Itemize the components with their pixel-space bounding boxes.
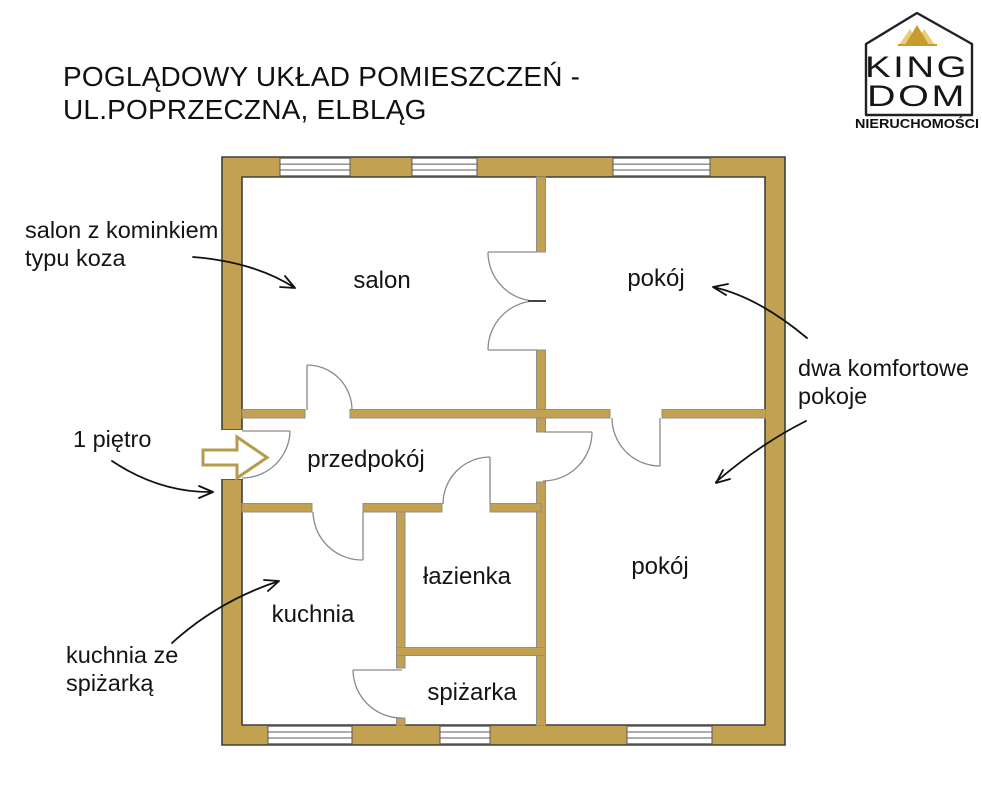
floor-plan-page: POGLĄDOWY UKŁAD POMIESZCZEŃ - UL.POPRZEC… <box>0 0 982 800</box>
room-label-pokoj-bottom: pokój <box>631 553 688 580</box>
window-icon <box>280 158 350 176</box>
windows-bottom-wall <box>268 726 712 744</box>
arrow-to-pokoj-bottom <box>716 421 806 483</box>
window-icon <box>412 158 477 176</box>
logo-subtitle: NIERUCHOMOŚCI <box>855 116 979 131</box>
note-rooms: dwa komfortowe pokoje <box>798 355 976 409</box>
room-label-przedpokoj: przedpokój <box>307 446 424 473</box>
window-icon <box>440 726 490 744</box>
room-label-spizarka: spiżarka <box>427 679 517 706</box>
arrow-to-pokoj-top <box>713 284 807 338</box>
window-icon <box>627 726 712 744</box>
salon-door-icon <box>307 365 352 410</box>
room-to-room-door-icon <box>612 418 660 466</box>
arrow-to-entrance <box>112 461 213 498</box>
room-label-salon: salon <box>353 267 410 294</box>
room-label-kuchnia: kuchnia <box>272 601 355 628</box>
window-icon <box>613 158 710 176</box>
kitchen-door-icon <box>313 512 363 560</box>
note-salon: salon z kominkiem typu koza <box>25 217 225 271</box>
page-title: POGLĄDOWY UKŁAD POMIESZCZEŃ - UL.POPRZEC… <box>63 60 580 126</box>
bathroom-door-icon <box>443 457 490 504</box>
hall-to-room-door-icon <box>543 432 592 481</box>
page-title-line1: POGLĄDOWY UKŁAD POMIESZCZEŃ - <box>63 60 580 93</box>
double-door-bottom-icon <box>488 301 537 350</box>
page-title-line2: UL.POPRZECZNA, ELBLĄG <box>63 93 580 126</box>
note-floor: 1 piętro <box>73 426 151 452</box>
double-door-top-icon <box>488 252 537 301</box>
agency-logo: KING DOM NIERUCHOMOŚCI <box>855 13 979 131</box>
room-label-pokoj-top: pokój <box>627 265 684 292</box>
logo-word-dom: DOM <box>867 80 967 113</box>
window-icon <box>268 726 352 744</box>
pantry-door-icon <box>353 670 402 718</box>
arrow-to-salon <box>193 257 295 288</box>
room-label-lazienka: łazienka <box>423 563 512 590</box>
note-kitchen: kuchnia ze spiżarką <box>66 642 185 696</box>
